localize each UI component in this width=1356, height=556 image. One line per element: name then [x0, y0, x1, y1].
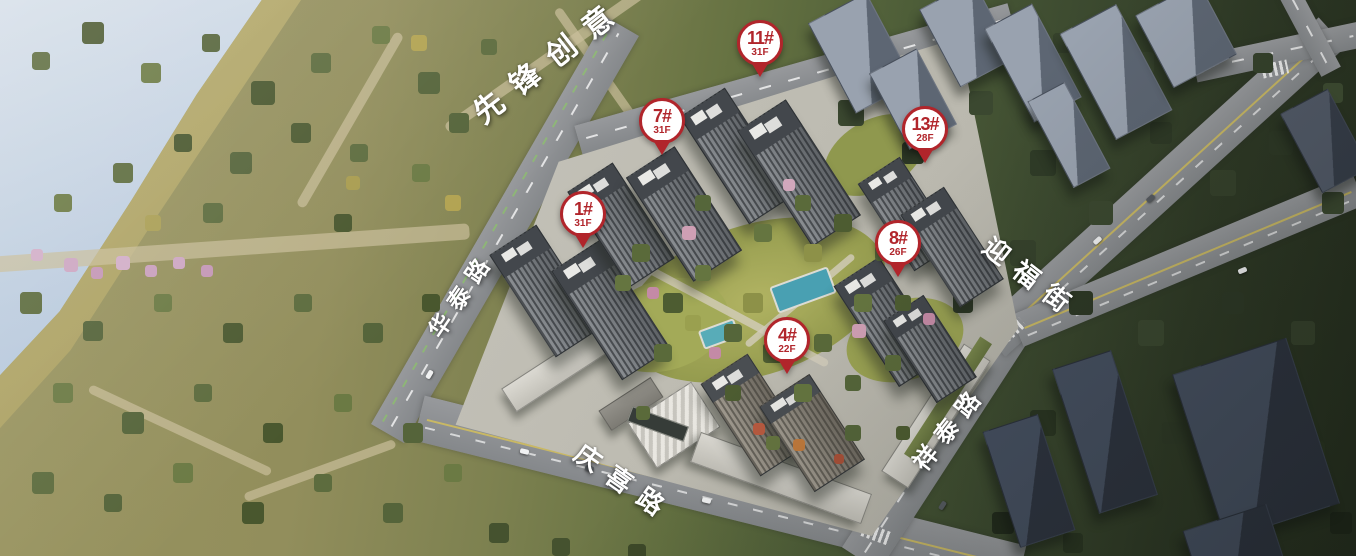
- building-marker-1[interactable]: 1# 31F: [559, 191, 607, 248]
- context-building-dark: [1052, 350, 1158, 514]
- park-path: [296, 31, 405, 209]
- marker-bubble: 1# 31F: [560, 191, 606, 237]
- building-marker-4[interactable]: 4# 22F: [763, 317, 811, 374]
- marker-building-number: 8#: [889, 229, 907, 247]
- garden-accent-trees: [0, 0, 2, 2]
- marker-building-number: 7#: [653, 107, 671, 125]
- context-building-dark: [983, 414, 1076, 548]
- marker-bubble: 7# 31F: [639, 98, 685, 144]
- marker-building-number: 4#: [778, 326, 796, 344]
- marker-building-number: 11#: [747, 29, 773, 47]
- marker-bubble: 11# 31F: [737, 20, 783, 66]
- building-marker-8[interactable]: 8# 26F: [874, 220, 922, 277]
- building-marker-13[interactable]: 13# 28F: [901, 106, 949, 163]
- park-path: [87, 384, 272, 477]
- marker-floor-count: 26F: [889, 248, 906, 258]
- marker-building-number: 13#: [911, 115, 938, 133]
- marker-floor-count: 31F: [751, 48, 768, 58]
- marker-pointer: [778, 359, 796, 374]
- marker-floor-count: 28F: [916, 134, 933, 144]
- context-building: [1280, 89, 1356, 194]
- marker-pointer: [751, 62, 769, 77]
- car: [1237, 266, 1247, 274]
- building-marker-7[interactable]: 7# 31F: [638, 98, 686, 155]
- marker-bubble: 13# 28F: [902, 106, 948, 152]
- marker-bubble: 4# 22F: [764, 317, 810, 363]
- aerial-site-map: 先锋创意 华泰路 庆喜路 祥泰路 迎福街 1# 31F 4# 22F 7# 31…: [0, 0, 1356, 556]
- marker-pointer: [574, 233, 592, 248]
- marker-floor-count: 31F: [574, 219, 591, 229]
- marker-floor-count: 31F: [653, 126, 670, 136]
- marker-pointer: [916, 148, 934, 163]
- marker-pointer: [653, 140, 671, 155]
- car: [938, 500, 947, 510]
- marker-floor-count: 22F: [778, 345, 795, 355]
- marker-building-number: 1#: [574, 200, 592, 218]
- building-marker-11[interactable]: 11# 31F: [736, 20, 784, 77]
- marker-pointer: [889, 262, 907, 277]
- marker-bubble: 8# 26F: [875, 220, 921, 266]
